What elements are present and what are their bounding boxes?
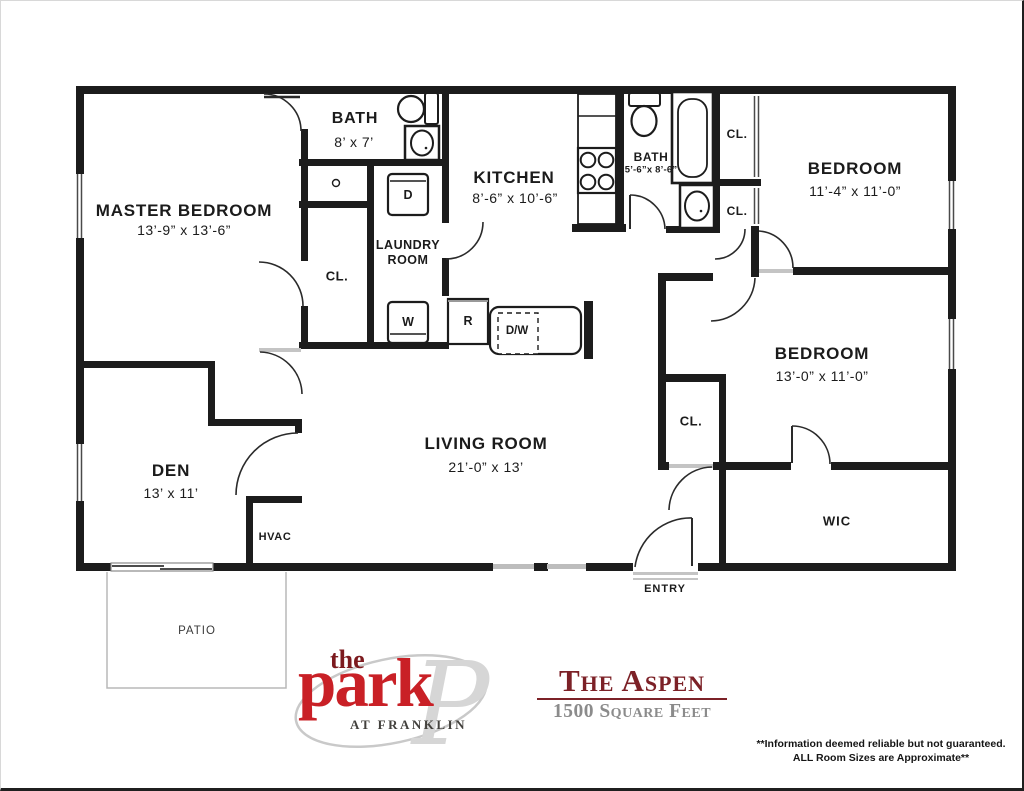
room-dims-living-room: 21’-0” x 13’ [448, 459, 523, 475]
sink-icon [405, 126, 439, 160]
plan-title: The Aspen [532, 663, 732, 699]
room-label-patio: PATIO [178, 625, 216, 637]
disclaimer: **Information deemed reliable but not gu… [753, 737, 1009, 765]
toilet-icon [398, 93, 438, 124]
disclaimer-line-1: **Information deemed reliable but not gu… [753, 737, 1009, 751]
toilet-icon [629, 93, 660, 136]
floorplan-page: MASTER BEDROOM 13’-9” x 13’-6” BATH 8’ x… [0, 0, 1024, 791]
appliance-label-washer: W [402, 315, 414, 329]
floor-plan-drawing [1, 1, 1024, 791]
room-label-bedroom-2: BEDROOM [775, 344, 869, 364]
appliance-label-dryer: D [403, 188, 412, 202]
bathtub-icon [672, 92, 713, 183]
stove-icon [578, 94, 616, 224]
closet-label-hall-2: CL. [727, 204, 748, 218]
room-label-entry: ENTRY [644, 583, 686, 595]
room-dims-den: 13’ x 11’ [143, 485, 198, 501]
bifold-closet-doors [755, 96, 759, 224]
plan-square-feet: 1500 Square Feet [532, 701, 732, 723]
plan-title-rule [537, 698, 727, 700]
knob-icon [333, 180, 340, 187]
fixtures [333, 92, 715, 354]
appliance-label-dishwasher: D/W [506, 325, 528, 337]
room-label-hall-bath: BATH [634, 150, 669, 164]
closet-label-master: CL. [326, 269, 348, 284]
room-label-den: DEN [152, 461, 190, 481]
room-dims-master-bedroom: 13’-9” x 13’-6” [137, 222, 231, 238]
closet-label-hall-1: CL. [727, 127, 748, 141]
appliance-label-refrigerator: R [463, 314, 472, 328]
room-dims-kitchen: 8’-6” x 10’-6” [472, 190, 558, 206]
room-label-master-bedroom: MASTER BEDROOM [96, 201, 272, 221]
room-dims-hall-bath: 5’-6”x 8’-6” [625, 165, 678, 176]
room-dims-bedroom-1: 11’-4” x 11’-0” [809, 183, 901, 199]
room-label-hvac: HVAC [259, 531, 292, 543]
logo-tagline: AT FRANKLIN [331, 717, 486, 733]
patio-sliding-door [111, 563, 213, 571]
sink-icon [680, 185, 714, 228]
room-label-master-bath: BATH [332, 110, 378, 128]
room-label-kitchen: KITCHEN [473, 168, 554, 188]
room-dims-bedroom-2: 13’-0” x 11’-0” [776, 368, 869, 384]
disclaimer-line-2: ALL Room Sizes are Approximate** [753, 751, 1009, 765]
room-label-living-room: LIVING ROOM [424, 434, 547, 454]
room-label-bedroom-1: BEDROOM [808, 159, 902, 179]
room-dims-master-bath: 8’ x 7’ [334, 134, 374, 150]
dishwasher-icon [490, 307, 581, 354]
room-label-wic: WIC [823, 514, 851, 529]
logo-word-park: park [298, 649, 432, 718]
closet-label-bedroom-2: CL. [680, 414, 702, 429]
room-label-laundry: LAUNDRY ROOM [366, 238, 450, 268]
